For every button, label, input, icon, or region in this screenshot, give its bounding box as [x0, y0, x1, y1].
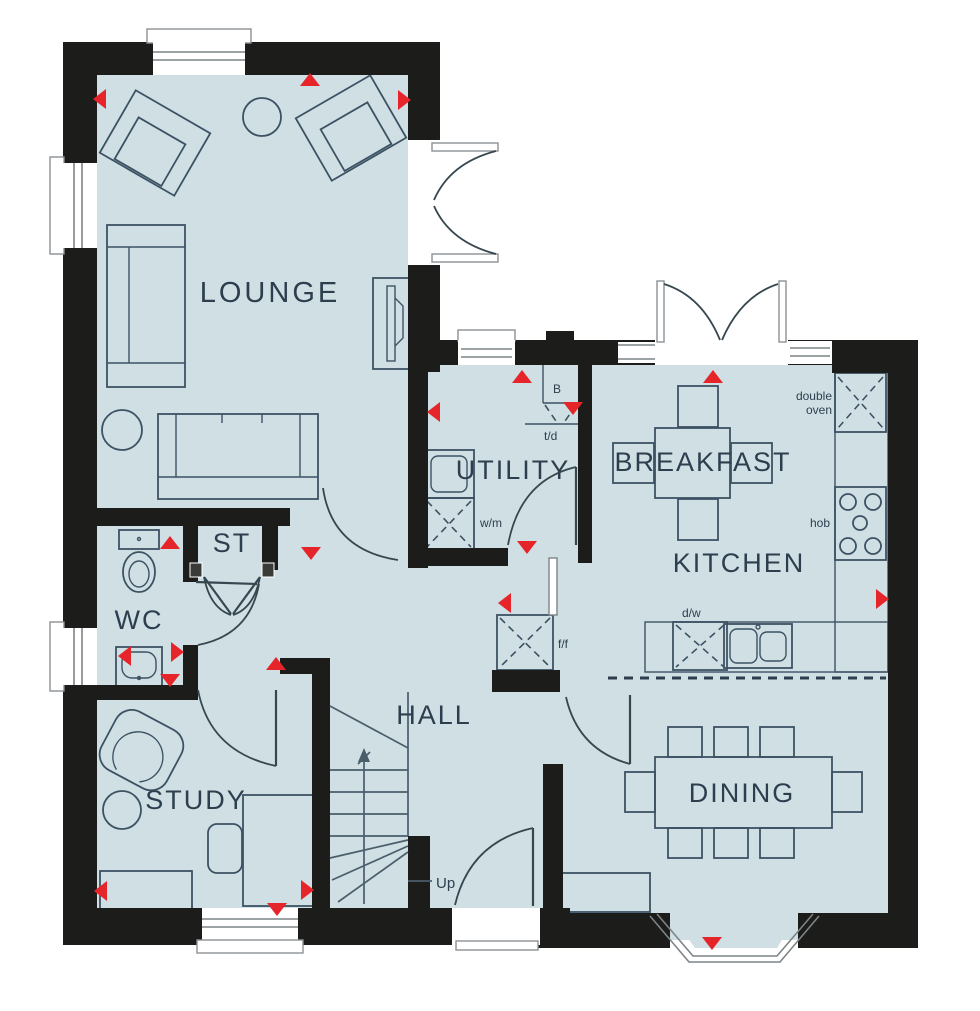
lounge-top-window — [147, 29, 251, 75]
floor-plan-page: LOUNGE UTILITY BREAKFAST KITCHEN ST WC H… — [0, 0, 980, 1011]
kitchen-french-doors — [655, 281, 788, 365]
label-boiler: B — [553, 382, 561, 396]
label-tumble-dryer: t/d — [544, 429, 557, 443]
label-fridge-freezer: f/f — [558, 637, 569, 651]
label-stairs-up: Up — [436, 875, 455, 892]
study-window — [197, 908, 303, 953]
wall-segment — [262, 508, 278, 570]
wc-window — [50, 622, 97, 691]
label-storage: ST — [213, 528, 252, 558]
wall-segment — [578, 365, 592, 563]
label-utility: UTILITY — [456, 455, 571, 485]
label-kitchen: KITCHEN — [673, 548, 806, 578]
label-lounge: LOUNGE — [200, 277, 340, 309]
wall-segment — [280, 658, 330, 674]
wall-segment — [63, 42, 440, 75]
kitchen-top-window — [788, 341, 832, 364]
wall-segment — [312, 674, 330, 914]
label-dishwasher: d/w — [682, 606, 701, 620]
label-dining: DINING — [689, 778, 796, 808]
wall-segment — [888, 340, 918, 948]
lounge-french-doors — [408, 140, 498, 265]
floor-west-wing — [75, 55, 430, 935]
label-wc: WC — [115, 605, 164, 635]
wall-segment — [492, 670, 560, 692]
kitchen-sidelight-left — [618, 342, 655, 363]
wall-segment — [832, 340, 918, 373]
utility-window — [458, 330, 515, 365]
wall-segment — [543, 764, 563, 914]
wall-segment — [63, 685, 198, 700]
label-double-oven-2: oven — [806, 403, 832, 417]
wall-segment — [70, 508, 290, 526]
label-double-oven-1: double — [796, 389, 832, 403]
wall-segment — [408, 372, 428, 568]
floor-plan-drawing: LOUNGE UTILITY BREAKFAST KITCHEN ST WC H… — [0, 0, 980, 1011]
floor-east-wing — [420, 350, 905, 940]
lounge-left-window — [50, 157, 97, 254]
wall-segment — [408, 836, 430, 912]
label-hall: HALL — [396, 700, 472, 730]
wall-segment — [408, 548, 508, 566]
label-study: STUDY — [145, 785, 247, 815]
label-breakfast: BREAKFAST — [614, 447, 791, 477]
wall-segment — [560, 913, 670, 948]
label-washing-machine: w/m — [479, 516, 502, 530]
flue-box — [546, 331, 574, 342]
floor-bay — [668, 910, 800, 948]
label-hob: hob — [810, 516, 830, 530]
